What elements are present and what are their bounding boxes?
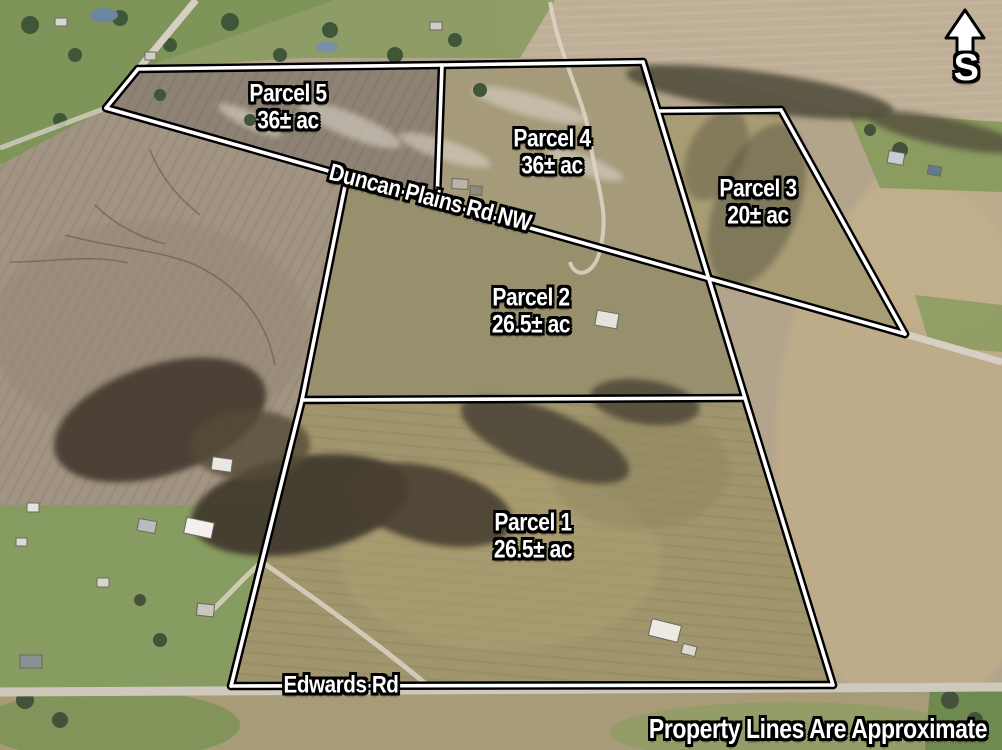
parcel-2-acreage: 26.5± ac xyxy=(492,311,570,338)
aerial-photo xyxy=(0,0,1002,750)
aerial-parcel-map: Parcel 5 36± ac Parcel 4 36± ac Parcel 3… xyxy=(0,0,1002,750)
parcel-2-name: Parcel 2 xyxy=(492,285,570,312)
pond xyxy=(316,41,338,53)
pond xyxy=(90,8,118,22)
parcel-3-acreage: 20± ac xyxy=(719,202,796,229)
compass-south-letter: S xyxy=(954,48,979,88)
parcel-5-label: Parcel 5 36± ac xyxy=(249,81,326,134)
parcel-1-acreage: 26.5± ac xyxy=(494,536,572,563)
parcel-5-name: Parcel 5 xyxy=(249,81,326,108)
parcel-4-acreage: 36± ac xyxy=(513,152,590,179)
parcel-4-name: Parcel 4 xyxy=(513,126,590,153)
parcel-5-acreage: 36± ac xyxy=(249,107,326,134)
parcel-3-label: Parcel 3 20± ac xyxy=(719,176,796,229)
parcel-3-name: Parcel 3 xyxy=(719,176,796,203)
disclaimer-text: Property Lines Are Approximate xyxy=(649,714,987,744)
parcel-2-label: Parcel 2 26.5± ac xyxy=(492,285,570,338)
parcel-1-name: Parcel 1 xyxy=(494,510,572,537)
edwards-rd-label: Edwards Rd xyxy=(284,672,399,697)
parcel-1-label: Parcel 1 26.5± ac xyxy=(494,510,572,563)
parcel-4-label: Parcel 4 36± ac xyxy=(513,126,590,179)
